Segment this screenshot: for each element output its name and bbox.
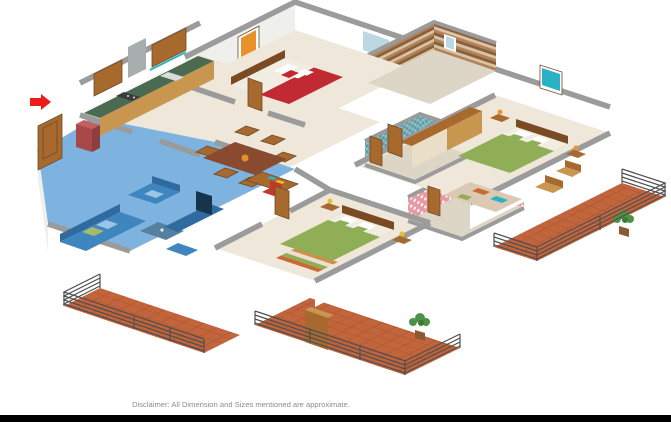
bedroom1-door: [248, 78, 262, 111]
floor-plan-svg: Disclaimer: All Dimension and Sizes ment…: [0, 0, 671, 422]
disclaimer-text: Disclaimer: All Dimension and Sizes ment…: [132, 400, 350, 409]
bathroom3-door: [428, 186, 440, 216]
fruit-bowl: [242, 155, 249, 162]
refrigerator: [76, 120, 100, 152]
bedroom2-door: [275, 186, 289, 219]
bathroom2-door: [370, 136, 382, 166]
master-door: [388, 124, 402, 157]
floor-plan-render: Disclaimer: All Dimension and Sizes ment…: [0, 0, 671, 422]
bottom-bar: [0, 415, 671, 422]
